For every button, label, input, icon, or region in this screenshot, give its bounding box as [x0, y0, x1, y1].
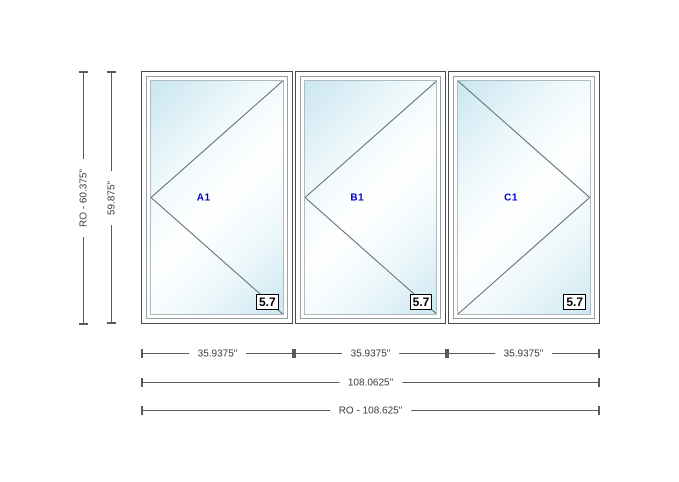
dimension-tick — [598, 349, 600, 358]
dimension-tick — [141, 406, 143, 415]
dimension-text: 59.875" — [106, 170, 117, 224]
dimension-tick — [79, 323, 88, 325]
dimension-panel-a-width: 35.9375" — [141, 349, 294, 358]
panel-label: A1 — [197, 192, 211, 203]
window-panel-a: A1 5.7 — [141, 71, 293, 324]
dimension-vertical-frame-height: 59.875" — [107, 71, 116, 324]
dimension-tick — [598, 378, 600, 387]
dimension-rough-opening-width: RO - 108.625" — [141, 406, 600, 415]
window-panel-b: B1 5.7 — [295, 71, 447, 324]
dimension-tick — [598, 406, 600, 415]
glass-spec-badge: 5.7 — [563, 294, 586, 310]
dimension-vertical-rough-opening: RO - 60.375" — [79, 71, 88, 325]
panel-glass: B1 5.7 — [304, 80, 438, 315]
panel-sash: A1 5.7 — [146, 76, 288, 319]
dimension-tick — [141, 349, 143, 358]
dimension-text: RO - 108.625" — [330, 405, 412, 416]
glass-spec-badge: 5.7 — [256, 294, 279, 310]
window-panel-c: C1 5.7 — [448, 71, 600, 324]
dimension-text: 35.9375" — [189, 348, 247, 359]
dimension-tick — [107, 71, 116, 73]
swing-direction-lines — [151, 81, 283, 314]
window-elevation-drawing: A1 5.7 B1 5.7 C1 5.7 — [0, 0, 679, 482]
dimension-tick — [447, 349, 449, 358]
dimension-panel-c-width: 35.9375" — [447, 349, 600, 358]
glass-spec-badge: 5.7 — [410, 294, 433, 310]
swing-direction-lines — [305, 81, 437, 314]
dimension-text: 35.9375" — [495, 348, 553, 359]
panel-label: C1 — [504, 192, 518, 203]
dimension-tick — [294, 349, 296, 358]
swing-direction-lines — [458, 81, 590, 314]
dimension-panel-b-width: 35.9375" — [294, 349, 447, 358]
panel-sash: B1 5.7 — [300, 76, 442, 319]
panel-glass: C1 5.7 — [457, 80, 591, 315]
dimension-text: 35.9375" — [342, 348, 400, 359]
panel-sash: C1 5.7 — [453, 76, 595, 319]
dimension-tick — [141, 378, 143, 387]
dimension-tick — [107, 322, 116, 324]
dimension-text: 108.0625" — [339, 377, 402, 388]
window-assembly: A1 5.7 B1 5.7 C1 5.7 — [141, 71, 600, 324]
panel-glass: A1 5.7 — [150, 80, 284, 315]
panel-label: B1 — [350, 192, 364, 203]
dimension-tick — [79, 71, 88, 73]
dimension-text: RO - 60.375" — [78, 159, 89, 237]
dimension-total-frame-width: 108.0625" — [141, 378, 600, 387]
